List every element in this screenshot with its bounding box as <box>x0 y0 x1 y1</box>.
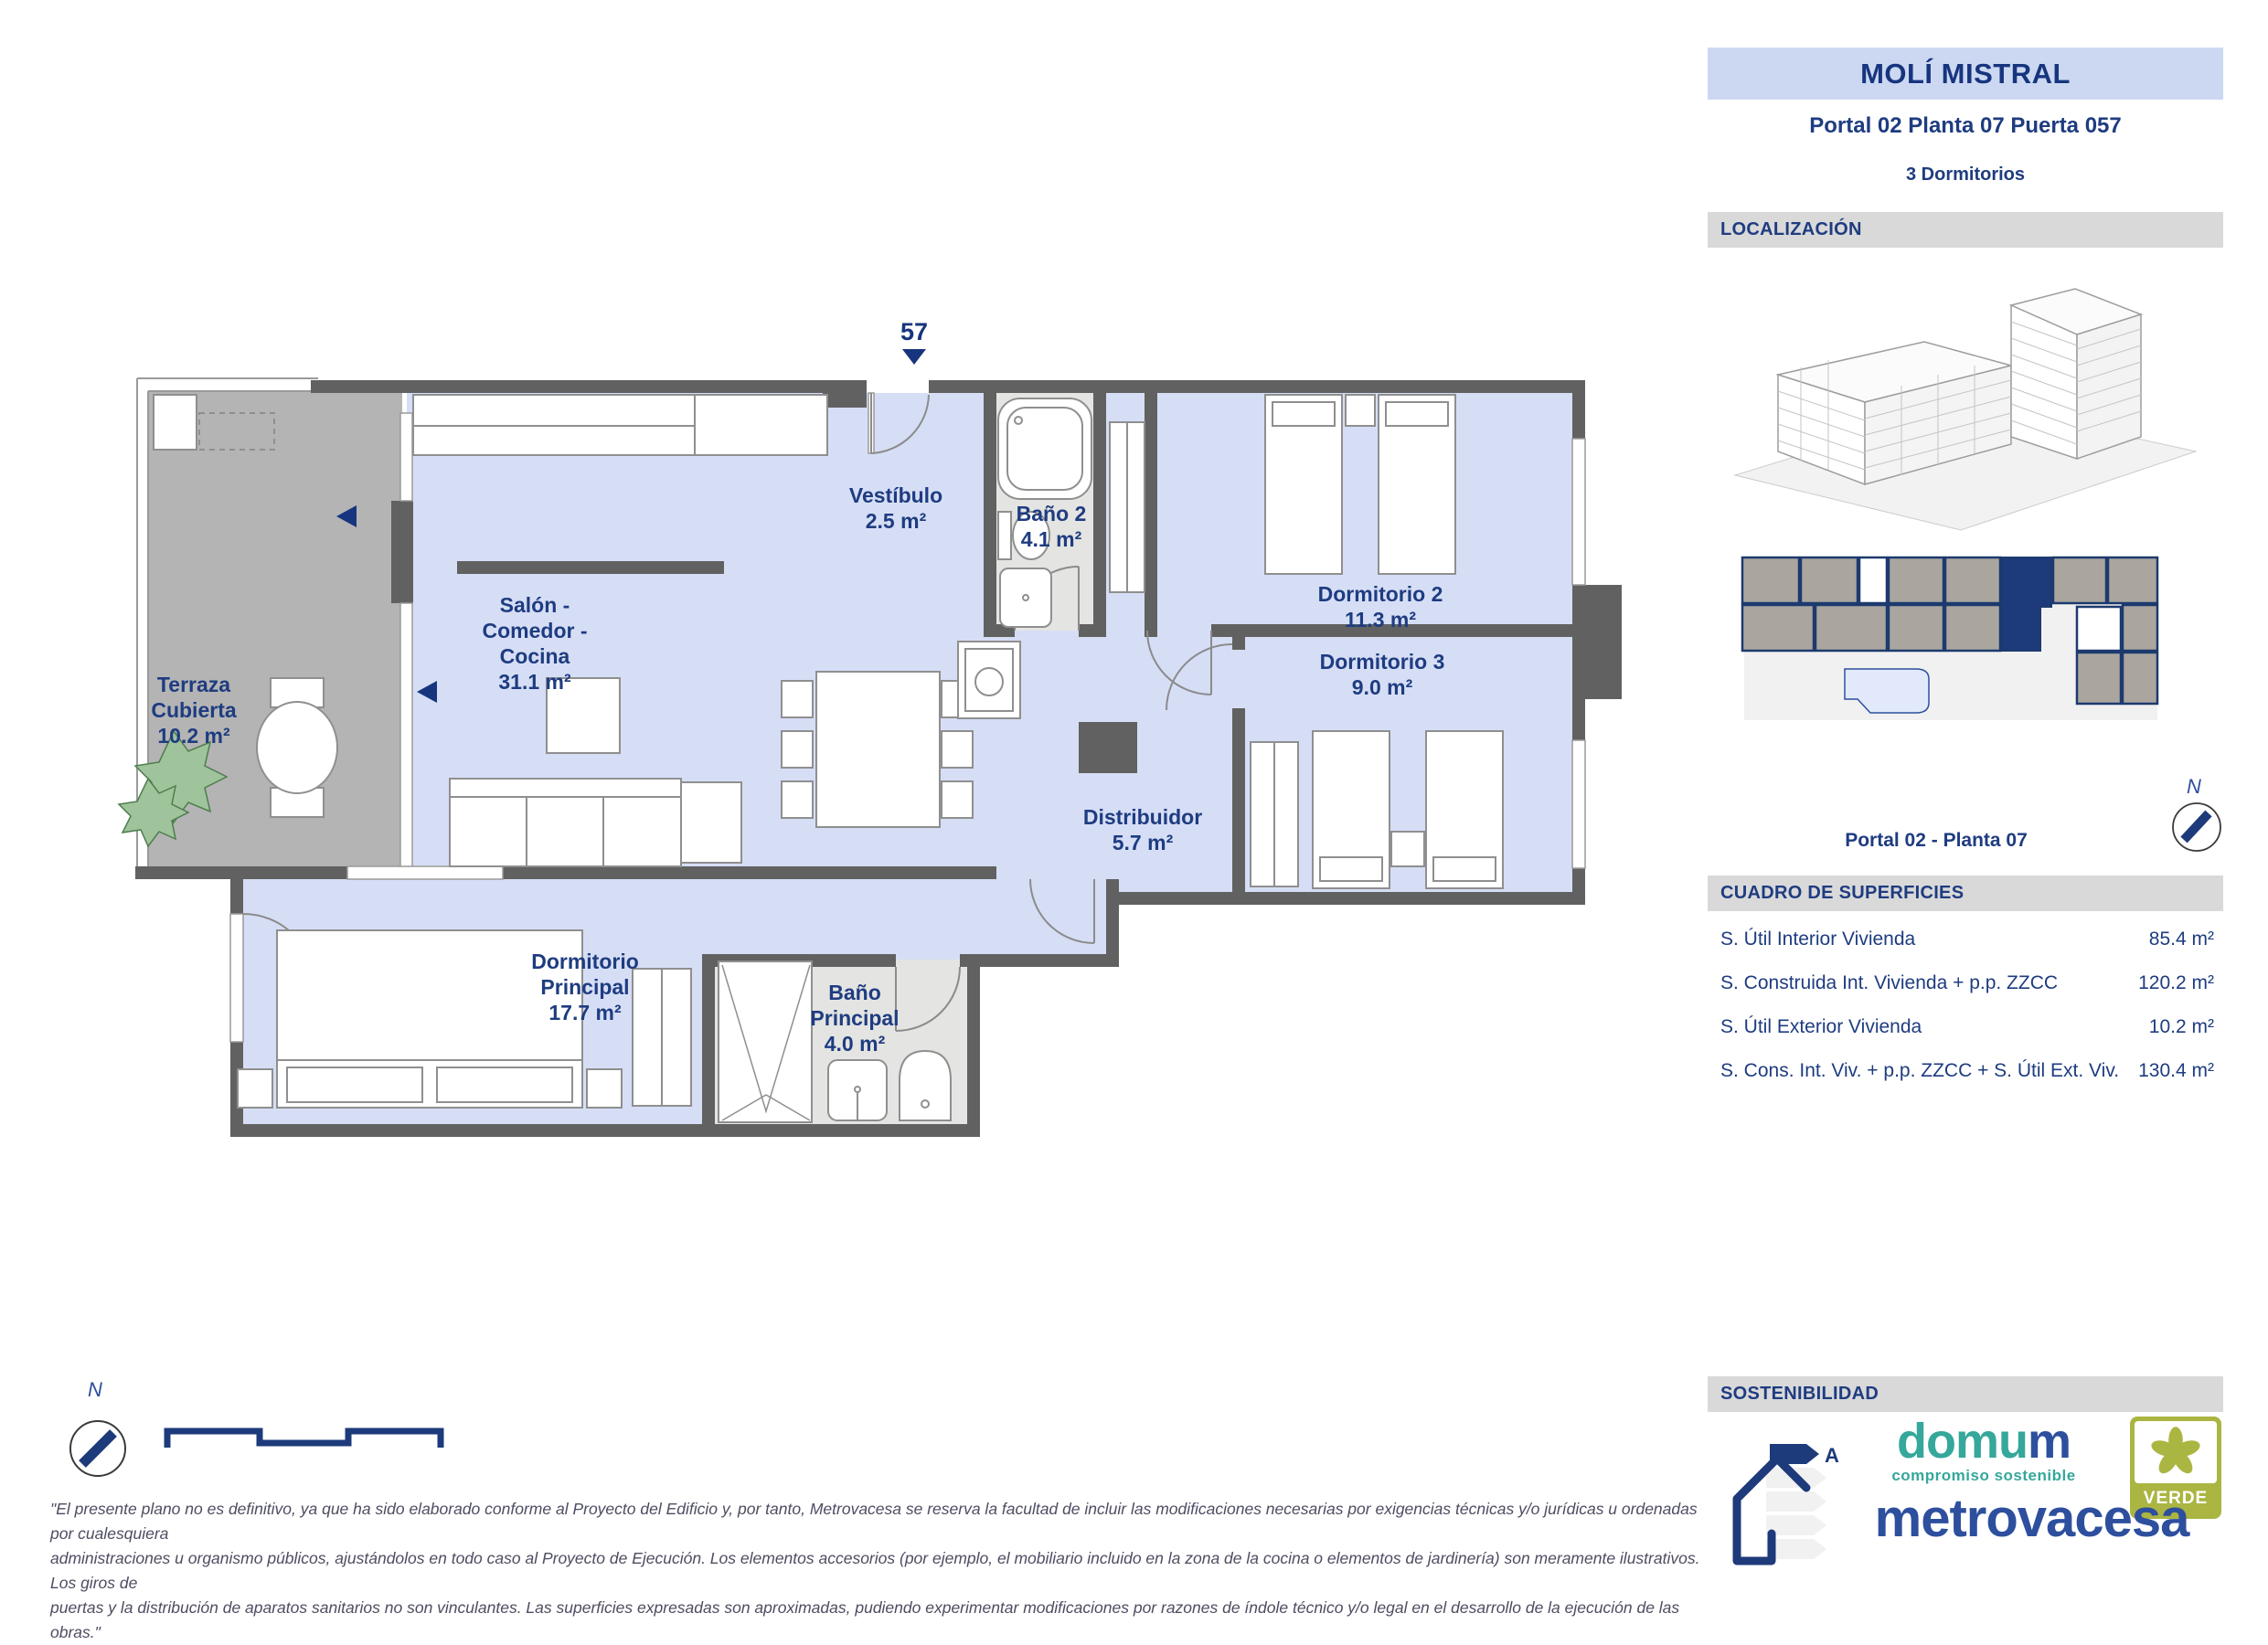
room-label-dormitorio2: Dormitorio 211.3 m² <box>1318 581 1443 632</box>
room-label-terraza: TerrazaCubierta10.2 m² <box>151 672 236 748</box>
compass-icon <box>70 1421 125 1476</box>
room-label-dormitorio3: Dormitorio 39.0 m² <box>1320 649 1445 700</box>
terrace-unit <box>154 395 197 450</box>
page-title: MOLÍ MISTRAL <box>1708 48 2223 100</box>
domum-wordmark-blue: m <box>2028 1414 2071 1469</box>
entrance-arrow-icon <box>902 349 926 365</box>
domum-wordmark-teal: domu <box>1897 1414 2028 1469</box>
domum-tagline: compromiso sostenible <box>1847 1468 2121 1483</box>
washing-machine <box>958 642 1020 718</box>
building-illustration <box>1728 258 2203 532</box>
keyplan-north-label: N <box>2187 775 2201 799</box>
energy-rating-letter: A <box>1825 1444 1839 1468</box>
room-label-bano-principal: BañoPrincipal4.0 m² <box>810 980 899 1056</box>
surface-label: S. Útil Interior Vivienda <box>1720 929 2149 950</box>
verde-leaf-icon <box>2135 1421 2217 1483</box>
portal-subtitle: Portal 02 Planta 07 Puerta 057 <box>1708 113 2223 139</box>
kitchen-counter <box>413 395 827 455</box>
disclaimer-line-1: "El presente plano no es definitivo, ya … <box>50 1497 1709 1546</box>
surface-row: S. Útil Interior Vivienda 85.4 m² <box>1708 918 2223 961</box>
sink-bath2 <box>1000 568 1051 627</box>
room-label-bano2: Baño 24.1 m² <box>1017 501 1087 552</box>
toilet-main-bath <box>900 1051 951 1120</box>
bedroom3-furniture <box>1251 731 1503 888</box>
section-localizacion: LOCALIZACIÓN <box>1708 212 2223 248</box>
keyplan-patio-2 <box>2077 607 2121 651</box>
room-label-salon: Salón -Comedor -Cocina31.1 m² <box>483 592 588 695</box>
surface-label: S. Cons. Int. Viv. + p.p. ZZCC + S. Útil… <box>1720 1060 2138 1082</box>
surface-label: S. Útil Exterior Vivienda <box>1720 1016 2149 1038</box>
metrovacesa-logo: metrovacesa <box>1828 1490 2235 1548</box>
surface-value: 10.2 m² <box>2149 1016 2214 1038</box>
surface-row: S. Cons. Int. Viv. + p.p. ZZCC + S. Útil… <box>1708 1049 2223 1093</box>
section-superficies: CUADRO DE SUPERFICIES <box>1708 876 2223 911</box>
bedrooms-subtitle: 3 Dormitorios <box>1708 164 2223 186</box>
section-sostenibilidad: SOSTENIBILIDAD <box>1708 1376 2223 1412</box>
keyplan-patio-1 <box>1859 557 1887 603</box>
keyplan-compass-icon <box>2170 801 2223 854</box>
sofa <box>450 779 741 866</box>
entrance-marker: 57 <box>900 318 928 365</box>
scale-bar <box>167 1431 441 1448</box>
surface-row: S. Construida Int. Vivienda + p.p. ZZCC … <box>1708 961 2223 1005</box>
room-label-vestibulo: Vestíbulo2.5 m² <box>849 483 942 534</box>
disclaimer-line-2: administraciones u organismo públicos, a… <box>50 1546 1709 1596</box>
disclaimer-line-3: puertas y la distribución de aparatos sa… <box>50 1596 1709 1645</box>
keyplan-map <box>1728 548 2203 763</box>
sink-main-bath <box>828 1060 887 1120</box>
domum-logo: domum compromiso sostenible <box>1847 1417 2121 1483</box>
surface-row: S. Útil Exterior Vivienda 10.2 m² <box>1708 1005 2223 1049</box>
bathtub <box>998 398 1091 499</box>
entrance-number: 57 <box>900 318 928 346</box>
surface-label: S. Construida Int. Vivienda + p.p. ZZCC <box>1720 972 2138 994</box>
surface-value: 120.2 m² <box>2138 972 2214 994</box>
plan-north-label: N <box>88 1378 102 1402</box>
dining-set <box>782 672 973 827</box>
surface-value: 130.4 m² <box>2138 1060 2214 1082</box>
room-label-dormitorio-principal: DormitorioPrincipal17.7 m² <box>531 949 639 1025</box>
surface-value: 85.4 m² <box>2149 929 2214 950</box>
hall-wardrobe <box>1110 422 1145 592</box>
keyplan-caption: Portal 02 - Planta 07 <box>1708 830 2165 852</box>
disclaimer-text: "El presente plano no es definitivo, ya … <box>50 1497 1709 1645</box>
energy-rating-icon <box>1715 1417 1838 1567</box>
floor-plan <box>0 0 1700 1603</box>
shower <box>719 961 812 1122</box>
room-label-distribuidor: Distribuidor5.7 m² <box>1083 804 1202 855</box>
